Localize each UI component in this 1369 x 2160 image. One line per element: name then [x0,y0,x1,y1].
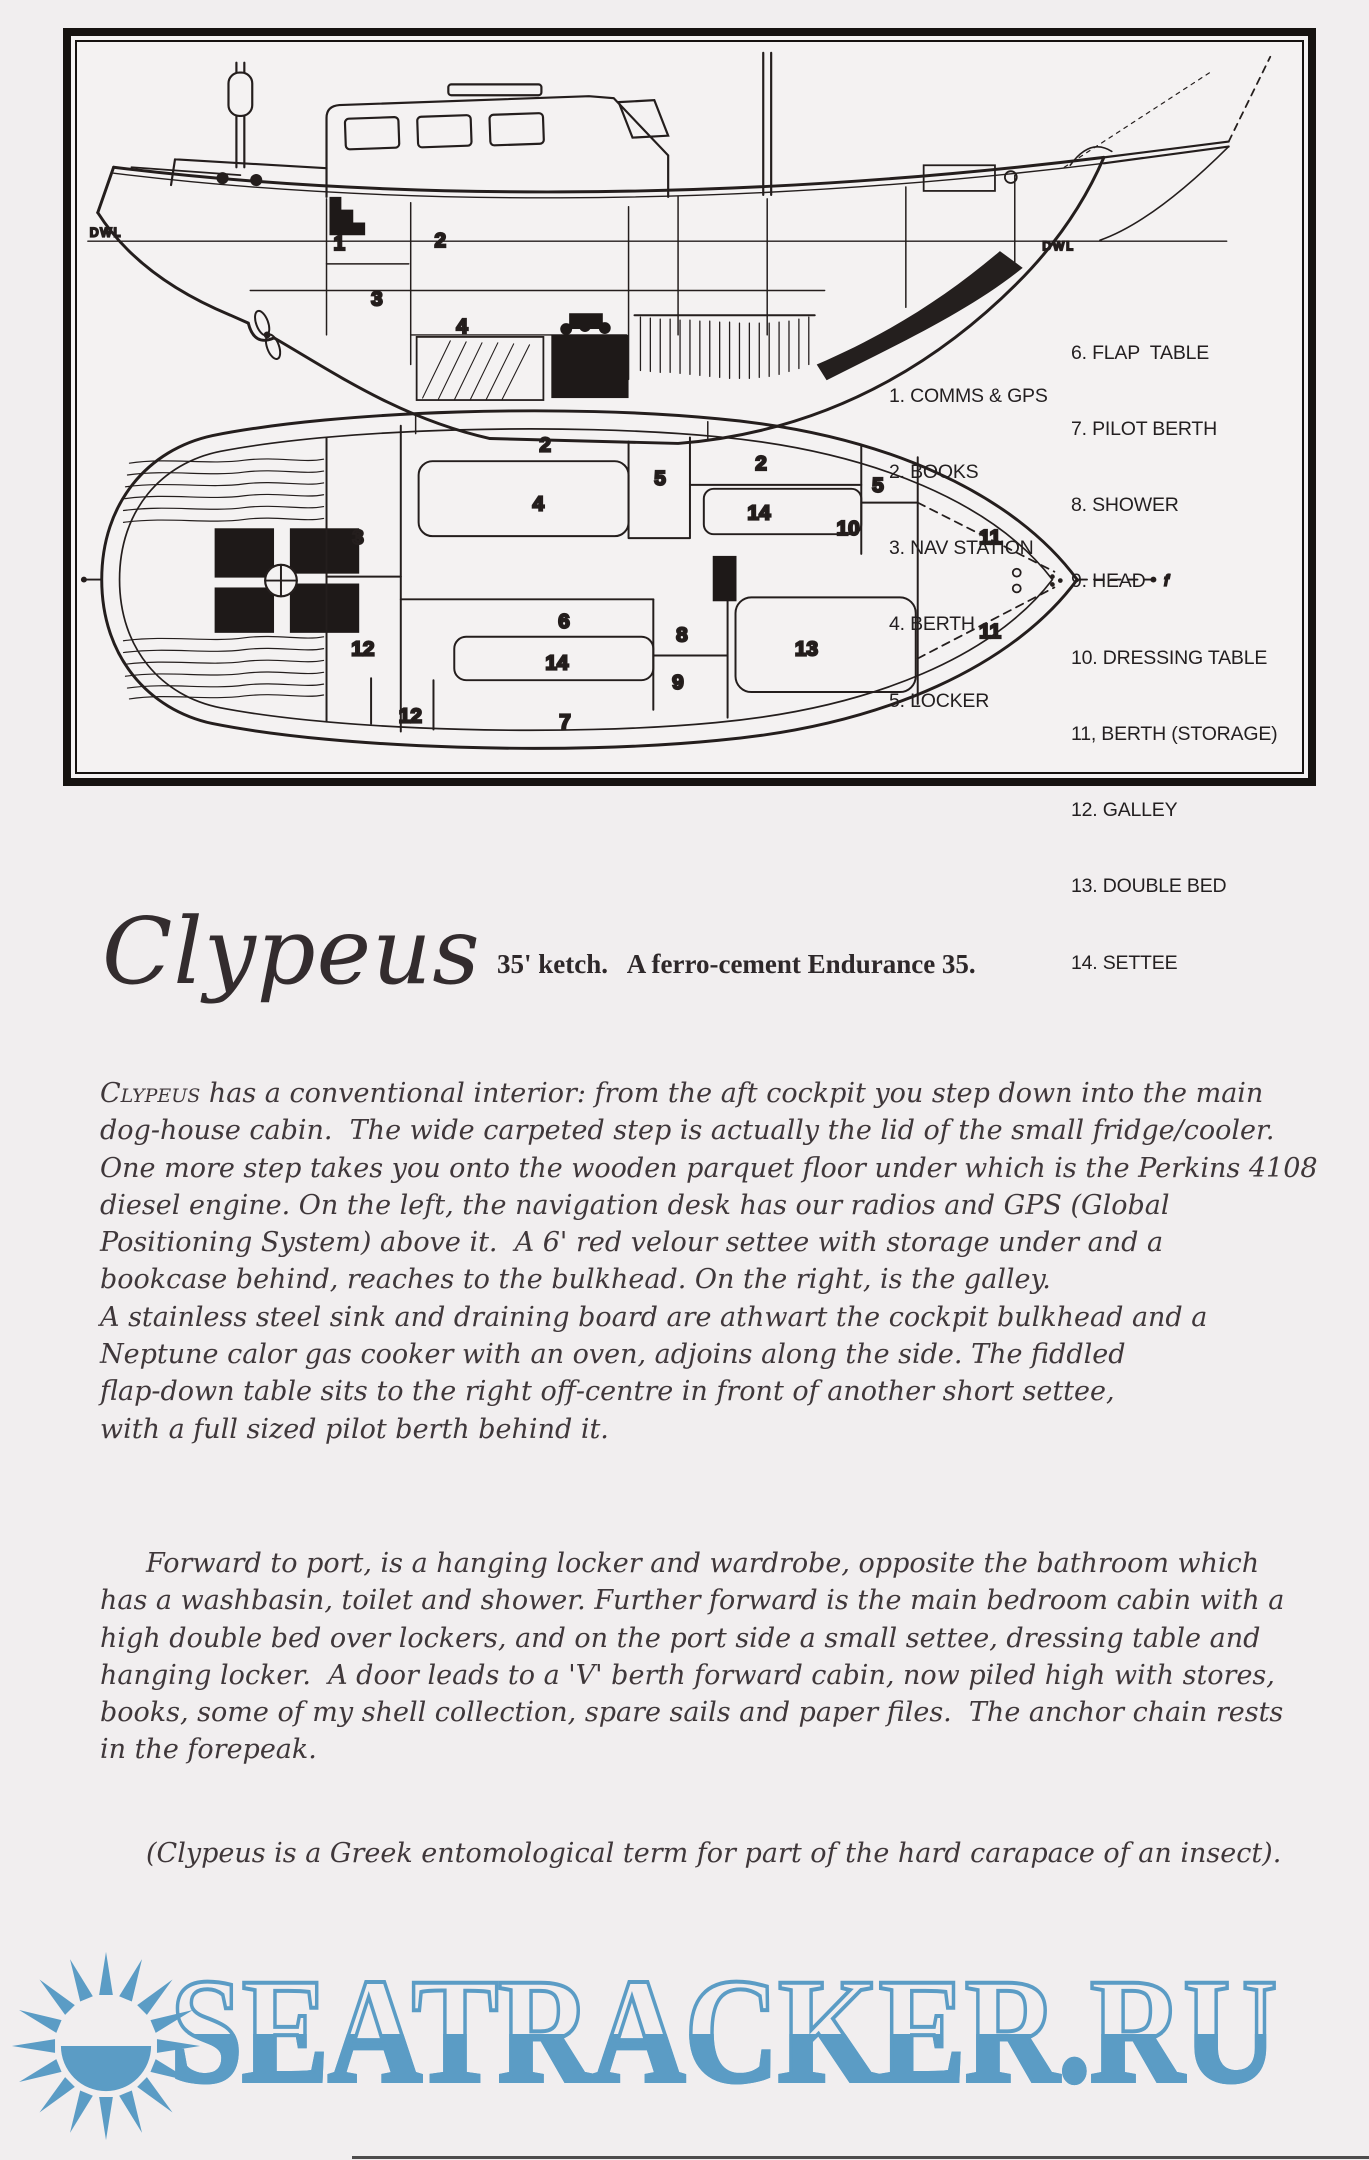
text-line-rest: has a conventional interior: from the af… [200,1078,1263,1109]
legend-item: 9. HEAD [1071,569,1306,594]
text-line: One more step takes you onto the wooden … [100,1153,1310,1190]
legend-item: 8. SHOWER [1071,493,1306,518]
legend-item: 13. DOUBLE BED [1071,874,1306,899]
text-line: hanging locker. A door leads to a 'V' be… [100,1660,1310,1697]
porthole [251,175,261,185]
compartment-number: 2 [434,229,446,252]
compartment-number: 14 [545,651,569,674]
boat-spec-subtitle: 35' ketch. A ferro-cement Endurance 35. [497,949,976,980]
sun-dome [73,2013,140,2046]
compartment-number: 13 [795,638,818,661]
text-line: Forward to port, is a hanging locker and… [100,1548,1310,1585]
compartment-number: 5 [872,474,884,497]
page-title: Clypeus [102,898,481,1005]
bowsprit-and-rigging [1064,57,1270,240]
compartment-number: 4 [456,315,468,338]
text-line: books, some of my shell collection, spar… [100,1697,1310,1734]
text-line: diesel engine. On the left, the navigati… [100,1190,1310,1227]
propeller [252,309,283,361]
watermark-text: SEATRACKER.RU [170,1956,1277,2106]
legend-item: 12. GALLEY [1071,798,1306,823]
text-line: Neptune calor gas cooker with an oven, a… [100,1339,1310,1376]
compartment-number: 12 [351,638,374,661]
scanned-book-page: { "colors": { "accent_blue": "#5b9cc5", … [0,0,1369,2160]
text-line: (Clypeus is a Greek entomological term f… [100,1838,1310,1875]
waterline-label: DWL [90,225,122,239]
plan-partitions [327,416,918,732]
boat-plans-panel: DWL DWL 1 2 3 4 [63,28,1316,786]
cabin-window [417,115,472,147]
compartment-number: 3 [352,526,364,549]
compartment-number: 2 [755,452,767,475]
main-mast [763,53,771,195]
legend-item: 14. SETTEE [1071,951,1306,976]
compartment-number: 1 [333,232,345,255]
legend-item: 4. BERTH [889,612,1099,637]
compartment-number: 3 [371,287,383,310]
legend-item: 7. PILOT BERTH [1071,417,1306,442]
text-line: flap-down table sits to the right off-ce… [100,1376,1310,1413]
text-line: Positioning System) above it. A 6' red v… [100,1227,1310,1264]
companionway-steps [329,197,365,235]
scan-edge-line [352,2156,1369,2159]
legend-item: 6. FLAP TABLE [1071,341,1306,366]
paragraph-interior-description: Clypeus has a conventional interior: fro… [100,1078,1310,1451]
legend-item: 5. LOCKER [889,689,1099,714]
compartment-number: 12 [399,705,422,728]
lead-word: Clypeus [100,1078,200,1109]
text-line: has a washbasin, toilet and shower. Furt… [100,1585,1310,1622]
compartment-number: 14 [747,501,771,524]
compartment-number: 4 [533,493,545,516]
legend-item: 3. NAV STATION [889,536,1099,561]
paragraph-etymology-note: (Clypeus is a Greek entomological term f… [100,1838,1310,1875]
cabin-window [345,117,400,149]
mast-step-block [713,556,737,601]
text-line: with a full sized pilot berth behind it. [100,1414,1310,1451]
text-line: A stainless steel sink and draining boar… [100,1302,1310,1339]
windshield [619,100,669,137]
text-line: in the forepeak. [100,1734,1310,1771]
text-line: Clypeus has a conventional interior: fro… [100,1078,1310,1115]
sun-sea-half [61,2046,151,2091]
legend-item: 10. DRESSING TABLE [1071,646,1306,671]
mizzen-step-symbol [265,565,297,597]
text-line: bookcase behind, reaches to the bulkhead… [100,1264,1310,1301]
text-line: high double bed over lockers, and on the… [100,1623,1310,1660]
text-line: dog-house cabin. The wide carpeted step … [100,1115,1310,1152]
legend-items-6-14: 6. FLAP TABLE 7. PILOT BERTH 8. SHOWER 9… [1071,290,1306,1027]
site-watermark: SEATRACKER.RU [0,1946,1369,2160]
mizzen-mast [131,63,252,175]
waterline-label: DWL [1042,239,1074,253]
legend-item: 1. COMMS & GPS [889,384,1099,409]
legend-items-1-5: 1. COMMS & GPS 2. BOOKS 3. NAV STATION 4… [889,333,1099,765]
tank-hatched [417,337,544,400]
legend-item: 2. BOOKS [889,460,1099,485]
compartment-number: 7 [559,711,571,734]
engine [551,313,628,398]
compartment-number: 10 [837,517,860,540]
compartment-number: 5 [654,467,666,490]
legend-item: 11, BERTH (STORAGE) [1071,722,1306,747]
paragraph-forward-cabin: Forward to port, is a hanging locker and… [100,1548,1310,1772]
compartment-number: 9 [672,671,684,694]
compartment-number: 8 [676,624,688,647]
compartment-number: 2 [539,433,551,456]
bilge-hatching [635,315,815,378]
doghouse [327,84,669,196]
cabin-window [489,113,544,145]
compartment-number: 6 [558,610,570,633]
